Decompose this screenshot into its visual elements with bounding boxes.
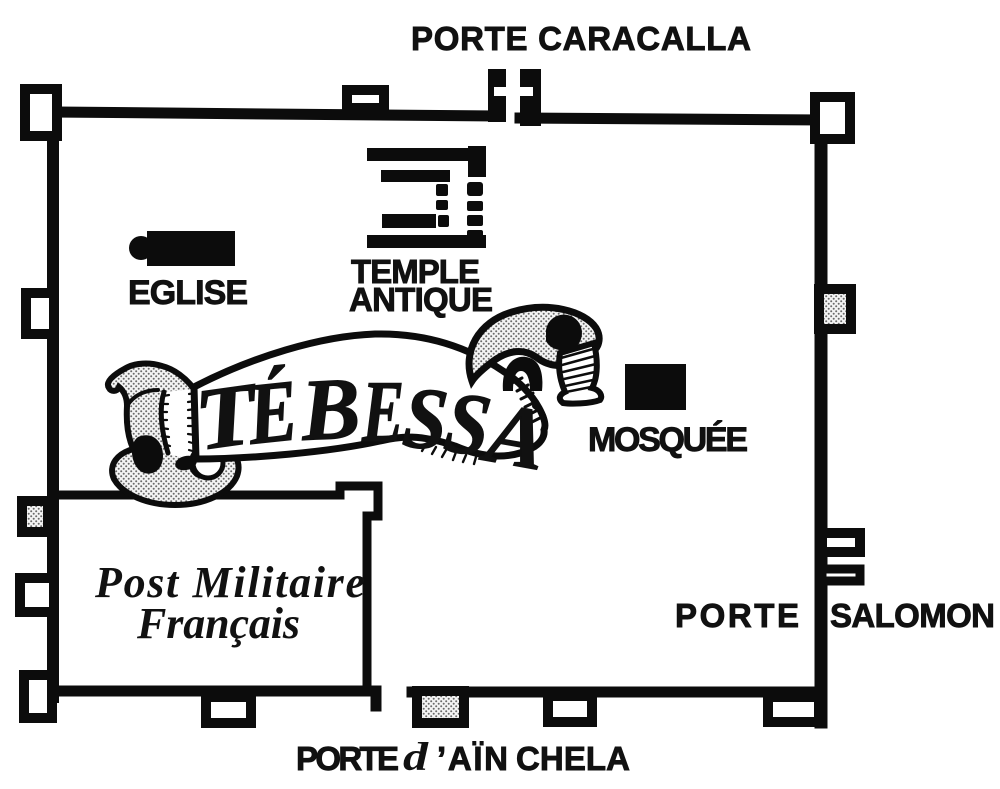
svg-text:MOSQUÉE: MOSQUÉE xyxy=(588,421,748,459)
svg-text:PORTE: PORTE xyxy=(675,597,799,634)
svg-text:CHELA: CHELA xyxy=(516,740,630,777)
svg-text:Français: Français xyxy=(136,599,300,648)
svg-text:PORTE CARACALLA: PORTE CARACALLA xyxy=(411,20,751,57)
svg-text:É: É xyxy=(242,361,303,464)
svg-text:EGLISE: EGLISE xyxy=(128,274,248,312)
svg-text:E: E xyxy=(361,363,404,461)
svg-text:B: B xyxy=(298,360,363,460)
svg-text:’AÏN: ’AÏN xyxy=(437,740,508,777)
svg-text:ANTIQUE: ANTIQUE xyxy=(349,281,493,318)
svg-text:d: d xyxy=(403,735,430,779)
svg-text:SALOMON: SALOMON xyxy=(830,597,995,634)
svg-text:PORTE: PORTE xyxy=(296,740,399,777)
